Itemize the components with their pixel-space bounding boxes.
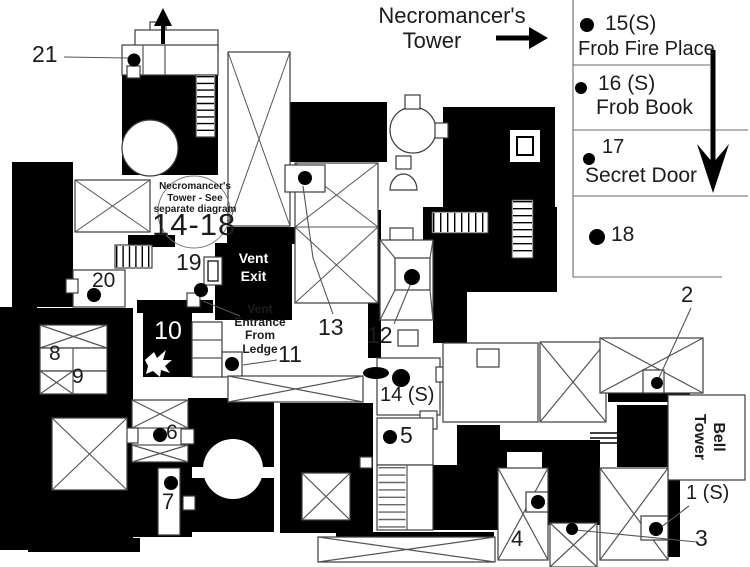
map-title-line1: Necromancer's: [358, 4, 546, 27]
room-sw: [52, 418, 127, 490]
marker-label-4: 4: [511, 527, 523, 550]
dot-legend-18: [589, 229, 605, 245]
central-hall: [285, 163, 378, 303]
dome-room: [390, 174, 417, 190]
right-arrow-icon: [496, 27, 548, 49]
marker-label-3: 3: [695, 526, 708, 550]
marker-label-12: 12: [367, 323, 393, 347]
legend-15-desc: Frob Fire Place: [578, 39, 715, 60]
marker-label-8: 8: [49, 343, 61, 365]
down-arrow-icon: [697, 50, 729, 193]
dot-5: [383, 430, 397, 444]
marker-label-1: 1 (S): [686, 483, 729, 504]
round-room: [122, 120, 178, 176]
dot-2: [651, 377, 663, 389]
room-south-long: [318, 537, 495, 562]
marker-label-13: 13: [318, 315, 344, 339]
marker-label-14: 14 (S): [380, 385, 434, 406]
legend-17-num: 17: [602, 137, 624, 158]
dot-19: [194, 283, 208, 297]
dot-4: [531, 495, 545, 509]
marker-label-6: 6: [166, 422, 178, 444]
marker-label-7: 7: [162, 490, 174, 513]
legend-16-desc: Frob Book: [596, 97, 693, 119]
dot-12: [404, 269, 420, 285]
tower-range-label: 14-18: [152, 209, 236, 242]
archway: [203, 439, 263, 499]
dot-1: [649, 522, 663, 536]
dot-3: [566, 523, 578, 535]
map-title-line2: Tower: [373, 29, 491, 52]
marker-label-19: 19: [176, 250, 202, 274]
legend-18-num: 18: [611, 224, 634, 246]
vent-exit-label: Vent Exit: [215, 250, 292, 285]
bell-tower-label: Bell Tower: [684, 402, 728, 472]
dot-legend-15: [580, 18, 594, 32]
level-map: Necromancer's Tower 15(S) Frob Fire Plac…: [0, 0, 750, 567]
marker-label-5: 5: [400, 423, 413, 447]
legend-17-desc: Secret Door: [585, 165, 697, 187]
legend-15-num: 15(S): [605, 13, 656, 35]
dot-legend-16: [575, 82, 587, 94]
marker-label-2: 2: [681, 283, 693, 306]
marker-label-10: 10: [150, 318, 186, 345]
round-tower: [390, 95, 448, 190]
marker-label-11: 11: [278, 342, 302, 366]
dot-21: [128, 54, 141, 67]
marker-label-21: 21: [32, 42, 58, 66]
marker-label-9: 9: [72, 366, 84, 388]
dot-13: [298, 171, 312, 185]
dot-11: [225, 357, 239, 371]
dot-6: [153, 428, 167, 442]
dot-7: [164, 476, 178, 490]
legend-16-num: 16 (S): [598, 73, 655, 95]
marker-label-20: 20: [92, 270, 115, 292]
door-ellipse: [363, 367, 389, 379]
